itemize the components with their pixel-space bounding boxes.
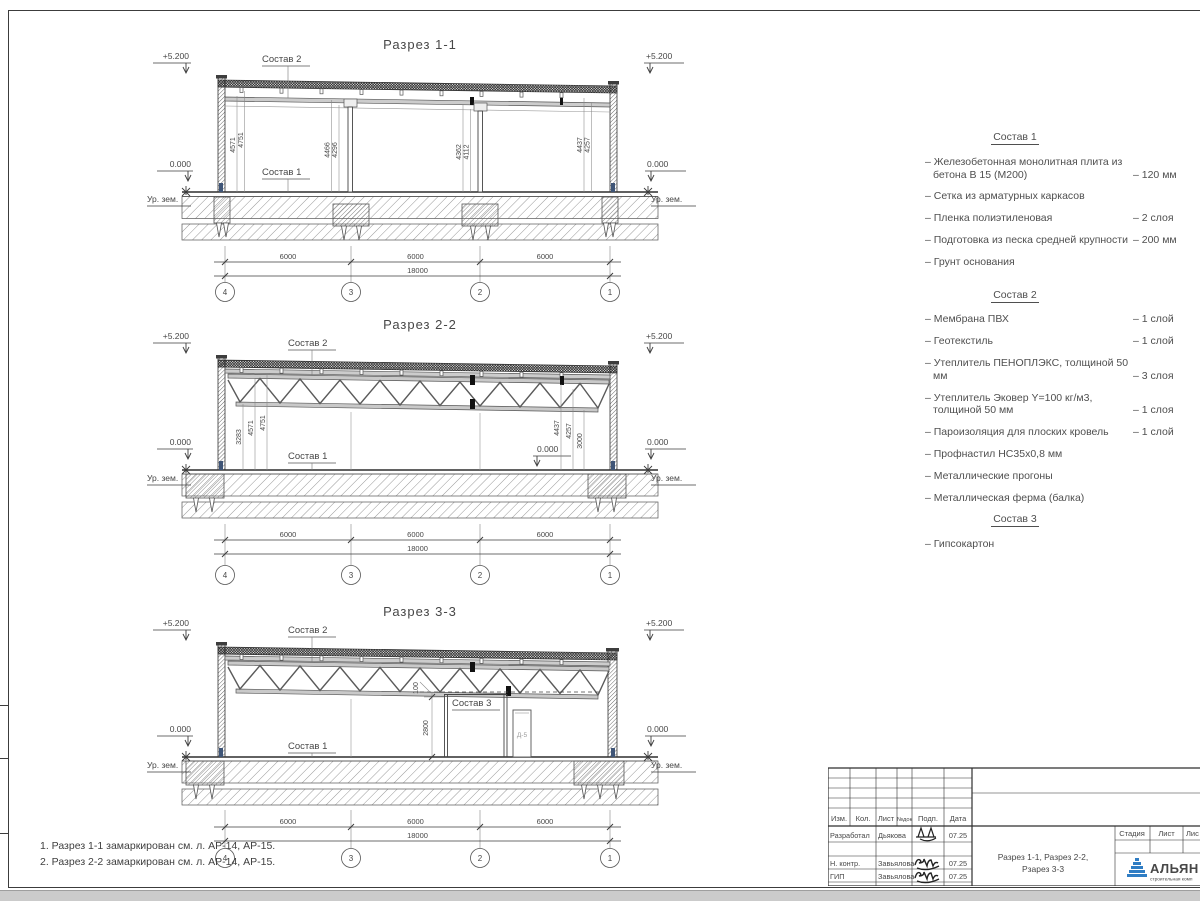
elevation-label: 0.000 [170, 437, 192, 447]
tb-name: Завьялова [878, 859, 915, 868]
elevation-label: +5.200 [646, 331, 673, 341]
spec-heading: Состав 3 [925, 513, 1105, 526]
tb-date: 07.25 [949, 872, 967, 881]
tb-stage-header: Лист [1158, 829, 1175, 838]
doc-title-line1: Разрез 1-1, Разрез 2-2, [998, 852, 1089, 862]
dim-label: 6000 [280, 817, 297, 826]
fold-mark [0, 833, 8, 834]
title-block: Изм. Кол. Лист №док Подп. Дата Разработа… [828, 767, 1200, 886]
section-title: Разрез 2-2 [383, 317, 457, 332]
grid-bubble-label: 1 [608, 854, 613, 863]
tb-col-header: Подп. [918, 814, 938, 823]
dim-label: 18000 [407, 266, 428, 275]
dim-label: 6000 [537, 252, 554, 261]
dim-label: 4112 [464, 144, 471, 159]
layer-callout: Состав 2 [262, 54, 301, 65]
dim-label: 6000 [280, 530, 297, 539]
material-spec-lists: Состав 1 – Железобетонная монолитная пли… [925, 131, 1197, 560]
layer-callout: Состав 3 [452, 698, 491, 709]
company-logo-icon [1127, 858, 1147, 877]
grid-bubble-label: 3 [349, 854, 354, 863]
doc-title-line2: Рзарез 3-3 [1022, 864, 1064, 874]
ground-level-label: Ур. зем. [651, 473, 682, 483]
fold-mark [0, 705, 8, 706]
dim-label: 4751 [238, 132, 245, 148]
layer-callout: Состав 2 [288, 338, 327, 349]
spec-item: – Пароизоляция для плоских кровель– 1 сл… [925, 426, 1197, 439]
layer-callout: Состав 2 [288, 625, 327, 636]
section-title: Разрез 3-3 [383, 604, 457, 619]
elevation-label: 0.000 [647, 437, 669, 447]
note-line: 1. Разрез 1-1 замаркирован см. л. АР-14,… [40, 838, 275, 854]
dim-label: 6000 [407, 817, 424, 826]
section-1-1-drawing: Разрез 1-1 Состав 2 Состав 1 +5.200 +5.2… [140, 28, 700, 305]
tb-date: 07.25 [949, 831, 967, 840]
elevation-label: +5.200 [646, 51, 673, 61]
grid-bubble-label: 3 [349, 571, 354, 580]
sheet-edge-shadow [0, 890, 1200, 901]
tb-col-header: Изм. [831, 814, 847, 823]
spec-item: – Геотекстиль– 1 слой [925, 335, 1197, 348]
spec-item: – Грунт основания [925, 256, 1197, 269]
grid-bubble-label: 1 [608, 288, 613, 297]
elevation-label: 0.000 [647, 724, 669, 734]
elevation-label: 0.000 [537, 444, 559, 454]
tb-stage-header: Стадия [1119, 829, 1145, 838]
spec-item: – Гипсокартон [925, 538, 1197, 551]
dim-label: 4571 [248, 420, 255, 436]
dim-label: 3000 [577, 433, 584, 449]
company-logo-subtitle: строительная комп [1150, 878, 1193, 883]
elevation-label: +5.200 [163, 51, 190, 61]
grid-bubble-label: 2 [478, 571, 483, 580]
elevation-label: 0.000 [170, 159, 192, 169]
tb-col-header: Кол. [856, 814, 871, 823]
dim-label: 6000 [407, 252, 424, 261]
tb-col-header: Лист [878, 814, 895, 823]
tb-role: Н. контр. [830, 859, 860, 868]
ground-level-label: Ур. зем. [147, 194, 178, 204]
note-line: 2. Разрез 2-2 замаркирован см. л. АР-14,… [40, 854, 275, 870]
spec-heading: Состав 1 [925, 131, 1105, 144]
elevation-label: 0.000 [170, 724, 192, 734]
spec-item: – Сетка из арматурных каркасов [925, 190, 1197, 203]
dim-label: 6000 [537, 530, 554, 539]
signature [916, 828, 936, 841]
elevation-label: 0.000 [647, 159, 669, 169]
section-title: Разрез 1-1 [383, 37, 457, 52]
ground-level-label: Ур. зем. [147, 760, 178, 770]
tb-role: Разработал [830, 831, 870, 840]
dim-label: 4751 [260, 415, 267, 431]
spec-item: – Металлические прогоны [925, 470, 1197, 483]
grid-bubble-label: 4 [223, 571, 228, 580]
spec-item: – Пленка полиэтиленовая– 2 слоя [925, 212, 1197, 225]
signature [915, 872, 939, 883]
dim-label: 4437 [577, 137, 584, 153]
dim-label: 4257 [566, 423, 573, 439]
elevation-label: +5.200 [646, 618, 673, 628]
spec-item: – Утеплитель ПЕНОПЛЭКС, толщиной 50 мм– … [925, 357, 1197, 383]
dim-label: 4296 [332, 142, 339, 158]
dim-label: 6000 [280, 252, 297, 261]
spec-item: – Подготовка из песка средней крупности–… [925, 234, 1197, 247]
tb-col-header: №док [897, 817, 913, 823]
company-logo-name: АЛЬЯН [1150, 861, 1199, 876]
dim-label: 4362 [456, 144, 463, 160]
fold-mark [0, 758, 8, 759]
grid-bubble-label: 4 [223, 288, 228, 297]
layer-callout: Состав 1 [288, 741, 327, 752]
dim-label: 18000 [407, 544, 428, 553]
ground-level-label: Ур. зем. [147, 473, 178, 483]
drawing-sheet: { "frame": { "notes": [ "1. Разрез 1-1 з… [0, 0, 1200, 900]
spec-item: – Утеплитель Эковер Y=100 кг/м3, толщино… [925, 392, 1197, 418]
dim-label: 4466 [325, 142, 332, 158]
tb-name: Завьялова [878, 872, 915, 881]
tb-role: ГИП [830, 872, 844, 881]
section-2-2-drawing: Разрез 2-2 Состав 2 Состав 1 +5.200 +5.2… [140, 308, 700, 600]
spec-item: – Железобетонная монолитная плита из бет… [925, 156, 1197, 182]
grid-bubble-label: 3 [349, 288, 354, 297]
tb-stage-header: Лис [1186, 829, 1199, 838]
spec-item: – Профнастил НС35х0,8 мм [925, 448, 1197, 461]
grid-bubble-label: 1 [608, 571, 613, 580]
dim-label: 18000 [407, 831, 428, 840]
ground-level-label: Ур. зем. [651, 194, 682, 204]
elevation-label: +5.200 [163, 331, 190, 341]
dim-label: 2800 [423, 720, 430, 736]
spec-item: – Металлическая ферма (балка) [925, 492, 1197, 505]
dim-label: 6000 [537, 817, 554, 826]
elevation-label: +5.200 [163, 618, 190, 628]
sheet-notes: 1. Разрез 1-1 замаркирован см. л. АР-14,… [40, 838, 275, 871]
door-label: Д-5 [517, 732, 528, 739]
dim-label: 3283 [236, 429, 243, 445]
tb-col-header: Дата [950, 814, 967, 823]
dim-label: 4257 [585, 137, 592, 153]
dim-label: 6000 [407, 530, 424, 539]
spec-item: – Мембрана ПВХ– 1 слой [925, 313, 1197, 326]
signature [915, 859, 939, 870]
dim-label: 4437 [554, 420, 561, 436]
tb-date: 07.25 [949, 859, 967, 868]
grid-bubble-label: 2 [478, 854, 483, 863]
tb-name: Дьякова [878, 831, 907, 840]
spec-heading: Состав 2 [925, 289, 1105, 302]
ground-level-label: Ур. зем. [651, 760, 682, 770]
dim-label: 100 [413, 682, 420, 694]
grid-bubble-label: 2 [478, 288, 483, 297]
layer-callout: Состав 1 [288, 451, 327, 462]
dim-label: 4571 [230, 137, 237, 153]
layer-callout: Состав 1 [262, 167, 301, 178]
